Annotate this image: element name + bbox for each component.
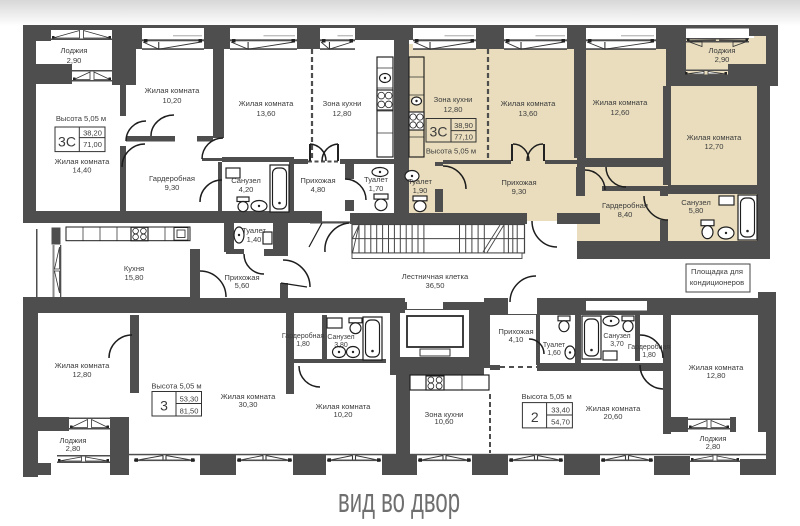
svg-text:1,80: 1,80 xyxy=(642,352,656,359)
svg-text:8,40: 8,40 xyxy=(618,210,633,219)
svg-text:3,80: 3,80 xyxy=(334,342,348,349)
svg-text:13,60: 13,60 xyxy=(256,109,275,118)
svg-text:81,50: 81,50 xyxy=(180,406,199,415)
svg-text:Высота 5,05 м: Высота 5,05 м xyxy=(56,114,106,123)
svg-text:12,70: 12,70 xyxy=(704,142,723,151)
svg-text:14,40: 14,40 xyxy=(72,166,91,175)
svg-text:Санузел: Санузел xyxy=(231,176,261,185)
svg-text:2,80: 2,80 xyxy=(66,444,81,453)
svg-text:Лестничная клетка: Лестничная клетка xyxy=(402,272,469,281)
svg-text:4,10: 4,10 xyxy=(509,335,524,344)
svg-text:Гардеробная: Гардеробная xyxy=(602,201,648,210)
svg-text:9,30: 9,30 xyxy=(165,183,180,192)
svg-text:2,80: 2,80 xyxy=(706,442,721,451)
svg-text:3С: 3С xyxy=(430,124,448,140)
svg-text:36,50: 36,50 xyxy=(425,281,444,290)
svg-text:Жилая комната: Жилая комната xyxy=(239,99,295,108)
svg-text:54,70: 54,70 xyxy=(551,418,570,427)
svg-text:Площадка для: Площадка для xyxy=(691,267,743,276)
svg-text:12,80: 12,80 xyxy=(72,370,91,379)
svg-text:77,10: 77,10 xyxy=(454,133,473,142)
svg-text:Лоджия: Лоджия xyxy=(709,46,736,55)
svg-text:9,30: 9,30 xyxy=(512,187,527,196)
svg-text:Жилая комната: Жилая комната xyxy=(593,98,649,107)
svg-text:3С: 3С xyxy=(58,133,76,149)
svg-text:1,60: 1,60 xyxy=(547,350,561,357)
svg-text:12,80: 12,80 xyxy=(706,371,725,380)
svg-text:Жилая комната: Жилая комната xyxy=(145,86,201,95)
svg-text:вид во двор: вид во двор xyxy=(338,482,460,520)
svg-text:38,90: 38,90 xyxy=(454,121,473,130)
svg-text:2,90: 2,90 xyxy=(715,55,730,64)
svg-text:Гардеробная: Гардеробная xyxy=(628,343,671,351)
svg-text:20,60: 20,60 xyxy=(603,412,622,421)
svg-text:4,20: 4,20 xyxy=(239,185,254,194)
svg-text:Зона кухни: Зона кухни xyxy=(434,95,473,104)
svg-text:1,90: 1,90 xyxy=(413,186,428,195)
svg-text:12,80: 12,80 xyxy=(443,105,462,114)
svg-text:Прихожая: Прихожая xyxy=(300,176,335,185)
svg-text:Прихожая: Прихожая xyxy=(501,178,536,187)
svg-text:Санузел: Санузел xyxy=(603,333,630,340)
svg-text:1,40: 1,40 xyxy=(247,235,262,244)
svg-text:12,80: 12,80 xyxy=(332,109,351,118)
svg-text:2,90: 2,90 xyxy=(67,56,82,65)
svg-text:Высота 5,05 м: Высота 5,05 м xyxy=(151,381,201,390)
svg-text:3,70: 3,70 xyxy=(610,341,624,348)
svg-text:кондиционеров: кондиционеров xyxy=(690,278,744,287)
svg-text:Санузел: Санузел xyxy=(327,334,354,341)
svg-text:Высота 5,05 м: Высота 5,05 м xyxy=(426,147,476,156)
svg-text:Зона кухни: Зона кухни xyxy=(323,99,362,108)
svg-text:10,20: 10,20 xyxy=(162,96,181,105)
svg-text:4,80: 4,80 xyxy=(311,185,326,194)
svg-text:38,20: 38,20 xyxy=(83,129,102,138)
svg-text:2: 2 xyxy=(531,409,539,425)
svg-text:5,80: 5,80 xyxy=(689,206,704,215)
svg-text:Кухня: Кухня xyxy=(124,264,144,273)
svg-text:Туалет: Туалет xyxy=(242,226,267,235)
svg-text:30,30: 30,30 xyxy=(238,400,257,409)
svg-text:Туалет: Туалет xyxy=(543,342,566,349)
svg-text:5,60: 5,60 xyxy=(235,281,250,290)
svg-text:Туалет: Туалет xyxy=(364,175,389,184)
svg-text:1,80: 1,80 xyxy=(296,341,310,348)
svg-text:Гардеробная: Гардеробная xyxy=(149,174,195,183)
svg-text:Туалет: Туалет xyxy=(408,177,433,186)
svg-text:Жилая комната: Жилая комната xyxy=(501,99,557,108)
svg-text:10,20: 10,20 xyxy=(333,410,352,419)
svg-text:53,30: 53,30 xyxy=(180,395,199,404)
svg-text:10,60: 10,60 xyxy=(434,417,453,426)
svg-text:33,40: 33,40 xyxy=(551,405,570,414)
svg-text:3: 3 xyxy=(160,397,168,413)
svg-text:1,70: 1,70 xyxy=(369,184,384,193)
svg-text:71,00: 71,00 xyxy=(83,140,102,149)
svg-text:12,60: 12,60 xyxy=(610,108,629,117)
svg-text:Высота 5,05 м: Высота 5,05 м xyxy=(521,392,571,401)
svg-text:13,60: 13,60 xyxy=(518,109,537,118)
svg-text:15,80: 15,80 xyxy=(124,273,143,282)
svg-text:Жилая комната: Жилая комната xyxy=(55,157,111,166)
svg-text:Жилая комната: Жилая комната xyxy=(55,361,111,370)
svg-text:Гардеробная: Гардеробная xyxy=(282,332,325,340)
svg-text:Лоджия: Лоджия xyxy=(61,46,88,55)
svg-text:Жилая комната: Жилая комната xyxy=(687,133,743,142)
